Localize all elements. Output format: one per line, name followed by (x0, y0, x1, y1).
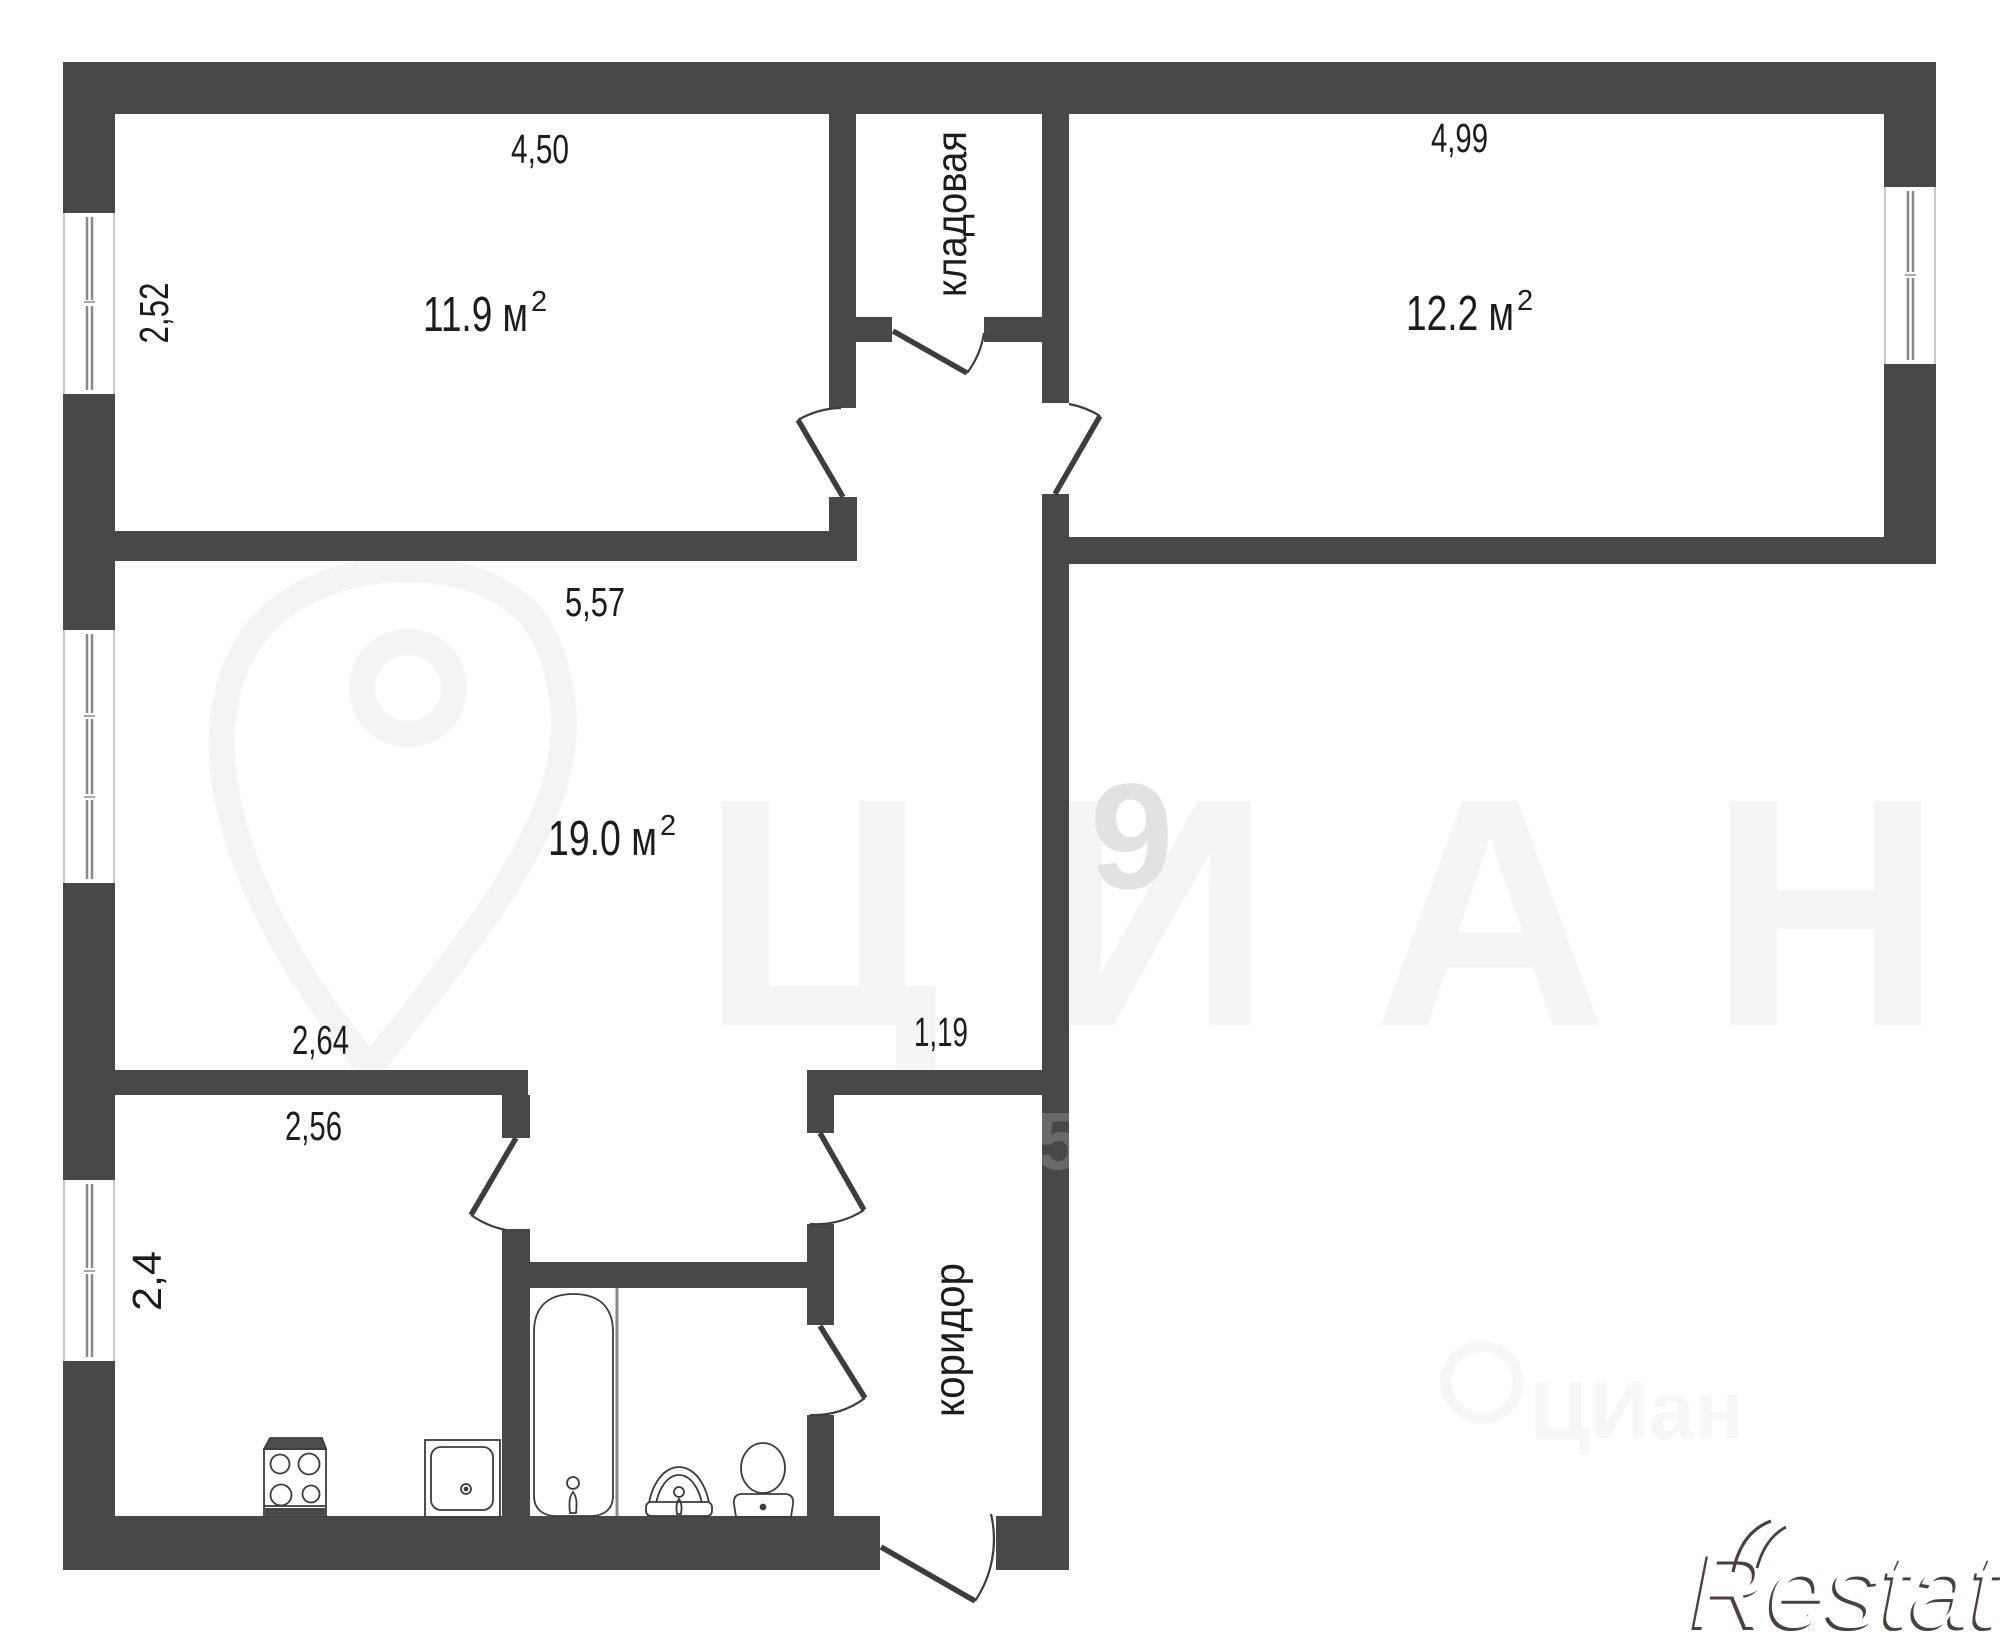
svg-text:ЦИан: ЦИан (1530, 1365, 1744, 1456)
svg-text:2,4: 2,4 (124, 1251, 170, 1311)
svg-text:19.0 м: 19.0 м (548, 812, 657, 866)
svg-text:4,99: 4,99 (1431, 115, 1488, 161)
svg-text:2,52: 2,52 (131, 283, 177, 344)
svg-text:коридор: коридор (926, 1263, 974, 1417)
svg-text:2: 2 (531, 286, 547, 318)
svg-text:2,64: 2,64 (292, 1017, 349, 1063)
svg-text:5: 5 (1036, 1096, 1082, 1187)
svg-text:4,50: 4,50 (511, 126, 569, 172)
svg-text:ЦИАН: ЦИАН (700, 731, 2000, 1095)
svg-text:2,56: 2,56 (285, 1103, 342, 1149)
svg-text:2: 2 (1517, 285, 1533, 317)
svg-text:11.9 м: 11.9 м (423, 288, 528, 342)
svg-text:кладовая: кладовая (928, 131, 976, 297)
svg-text:5,57: 5,57 (565, 579, 625, 625)
svg-text:2: 2 (660, 810, 676, 842)
svg-text:Restate: Restate (1691, 1530, 2000, 1634)
svg-text:9: 9 (1090, 752, 1173, 920)
svg-text:1,19: 1,19 (914, 1009, 968, 1055)
svg-text:12.2 м: 12.2 м (1406, 287, 1514, 341)
